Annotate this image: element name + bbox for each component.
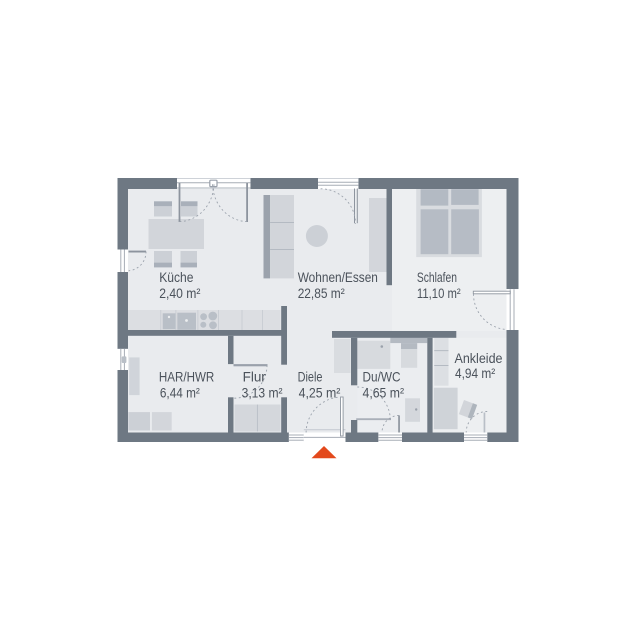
svg-text:3,13 m²: 3,13 m² [242, 386, 283, 401]
svg-text:11,10 m²: 11,10 m² [417, 286, 461, 301]
svg-text:HAR/HWR: HAR/HWR [159, 369, 214, 384]
svg-text:Flur: Flur [243, 369, 267, 384]
svg-text:Diele: Diele [298, 369, 323, 384]
svg-text:Ankleide: Ankleide [455, 351, 503, 366]
svg-text:Schlafen: Schlafen [417, 270, 457, 285]
svg-text:Küche: Küche [159, 270, 194, 285]
svg-text:6,44 m²: 6,44 m² [160, 386, 200, 401]
svg-text:4,65 m²: 4,65 m² [363, 386, 405, 401]
svg-text:2,40 m²: 2,40 m² [159, 286, 201, 301]
svg-text:4,25 m²: 4,25 m² [299, 386, 341, 401]
svg-text:Wohnen/Essen: Wohnen/Essen [298, 270, 378, 285]
svg-text:4,94 m²: 4,94 m² [455, 366, 496, 381]
svg-text:Du/WC: Du/WC [363, 369, 401, 384]
svg-text:22,85 m²: 22,85 m² [298, 286, 345, 301]
